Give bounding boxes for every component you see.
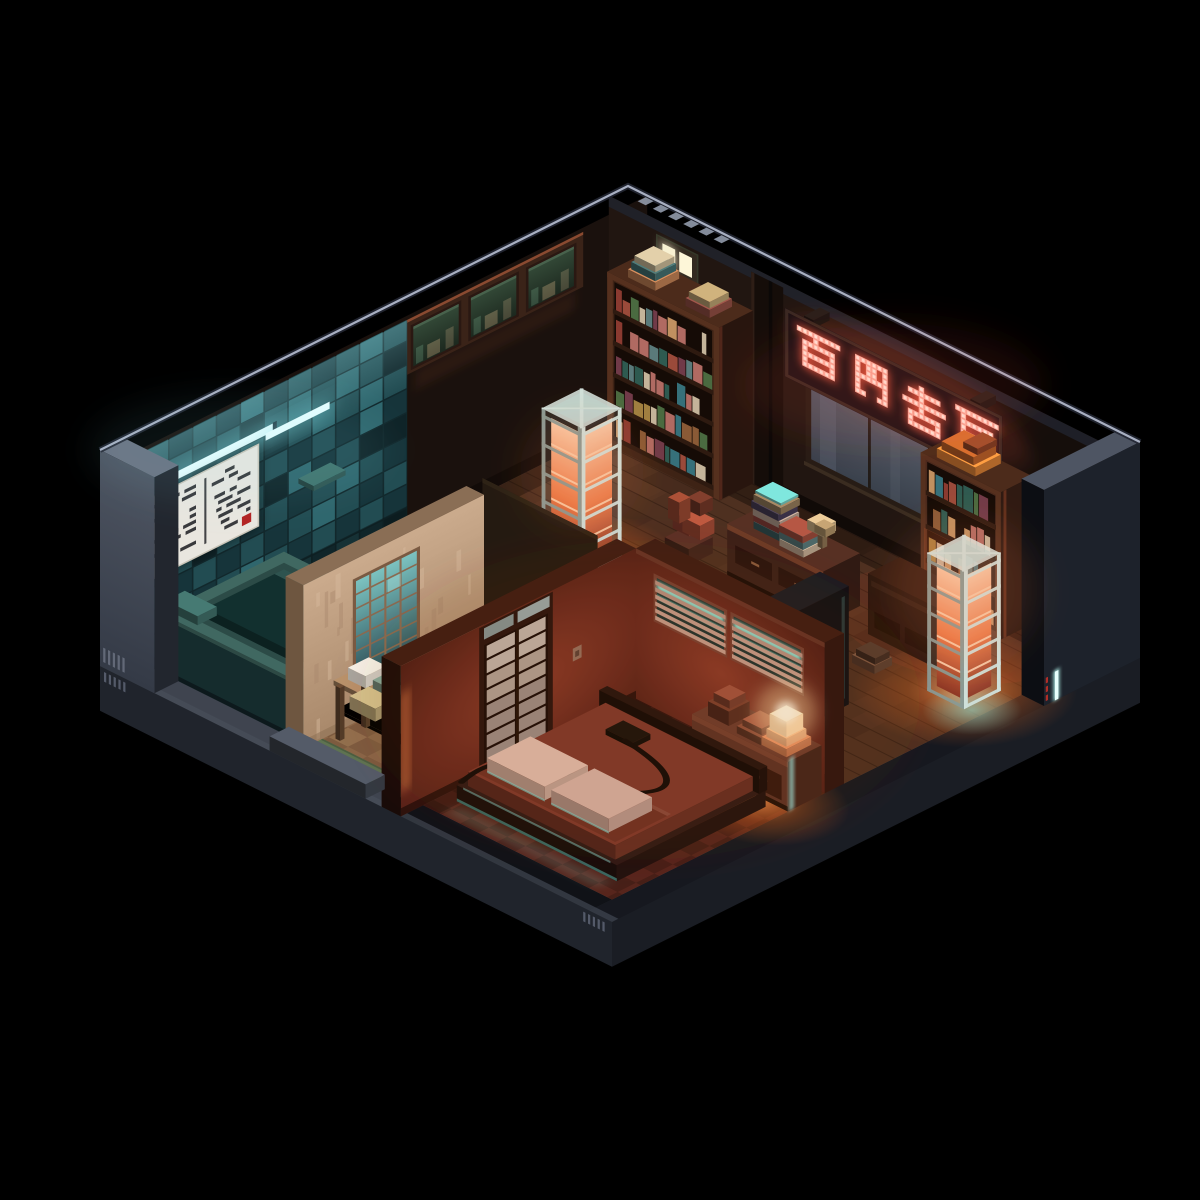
scene-container: 百円書房 isometric voxel cutaway room at nig… <box>0 0 1200 1200</box>
voxel-room-scene <box>0 0 1200 1200</box>
vignette <box>0 0 1200 1200</box>
